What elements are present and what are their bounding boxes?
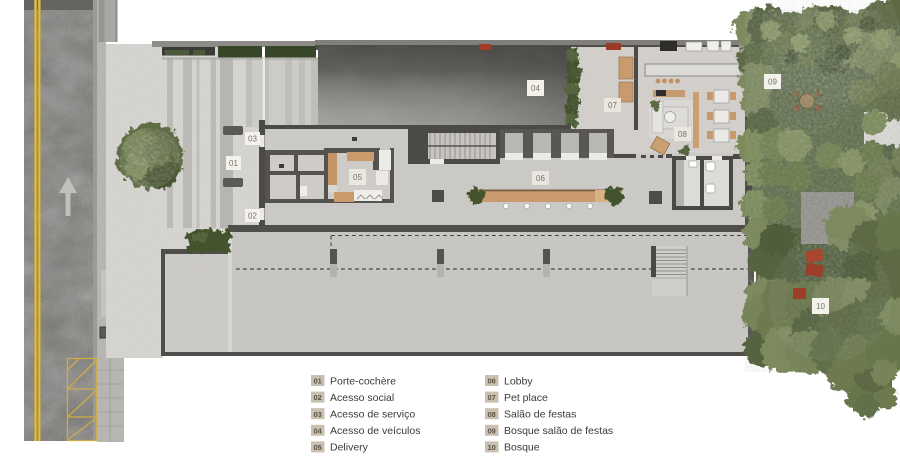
svg-text:06: 06 [488, 377, 496, 386]
svg-text:03: 03 [314, 410, 322, 419]
svg-text:04: 04 [531, 84, 540, 93]
svg-text:Salão de festas: Salão de festas [504, 409, 576, 421]
svg-text:01: 01 [314, 377, 322, 386]
svg-text:02: 02 [248, 212, 257, 221]
svg-text:04: 04 [314, 426, 323, 435]
svg-text:Bosque salão de festas: Bosque salão de festas [504, 425, 613, 437]
svg-text:02: 02 [314, 393, 322, 402]
svg-text:Acesso social: Acesso social [330, 392, 394, 404]
svg-text:07: 07 [608, 101, 617, 110]
svg-text:06: 06 [536, 174, 545, 183]
svg-text:Pet place: Pet place [504, 392, 548, 404]
svg-text:01: 01 [229, 159, 238, 168]
svg-text:05: 05 [353, 173, 362, 182]
svg-text:Delivery: Delivery [330, 442, 369, 454]
svg-text:07: 07 [488, 393, 496, 402]
svg-text:Porte-cochère: Porte-cochère [330, 375, 396, 387]
svg-text:Acesso de serviço: Acesso de serviço [330, 409, 415, 421]
svg-text:08: 08 [488, 410, 496, 419]
svg-text:Acesso de veículos: Acesso de veículos [330, 425, 420, 437]
svg-text:Lobby: Lobby [504, 375, 533, 387]
svg-text:Bosque: Bosque [504, 442, 540, 454]
svg-text:09: 09 [768, 78, 777, 87]
svg-text:08: 08 [678, 130, 687, 139]
svg-text:10: 10 [488, 443, 496, 452]
svg-text:03: 03 [248, 135, 257, 144]
svg-text:09: 09 [488, 426, 496, 435]
svg-text:05: 05 [314, 443, 322, 452]
svg-text:10: 10 [816, 302, 825, 311]
